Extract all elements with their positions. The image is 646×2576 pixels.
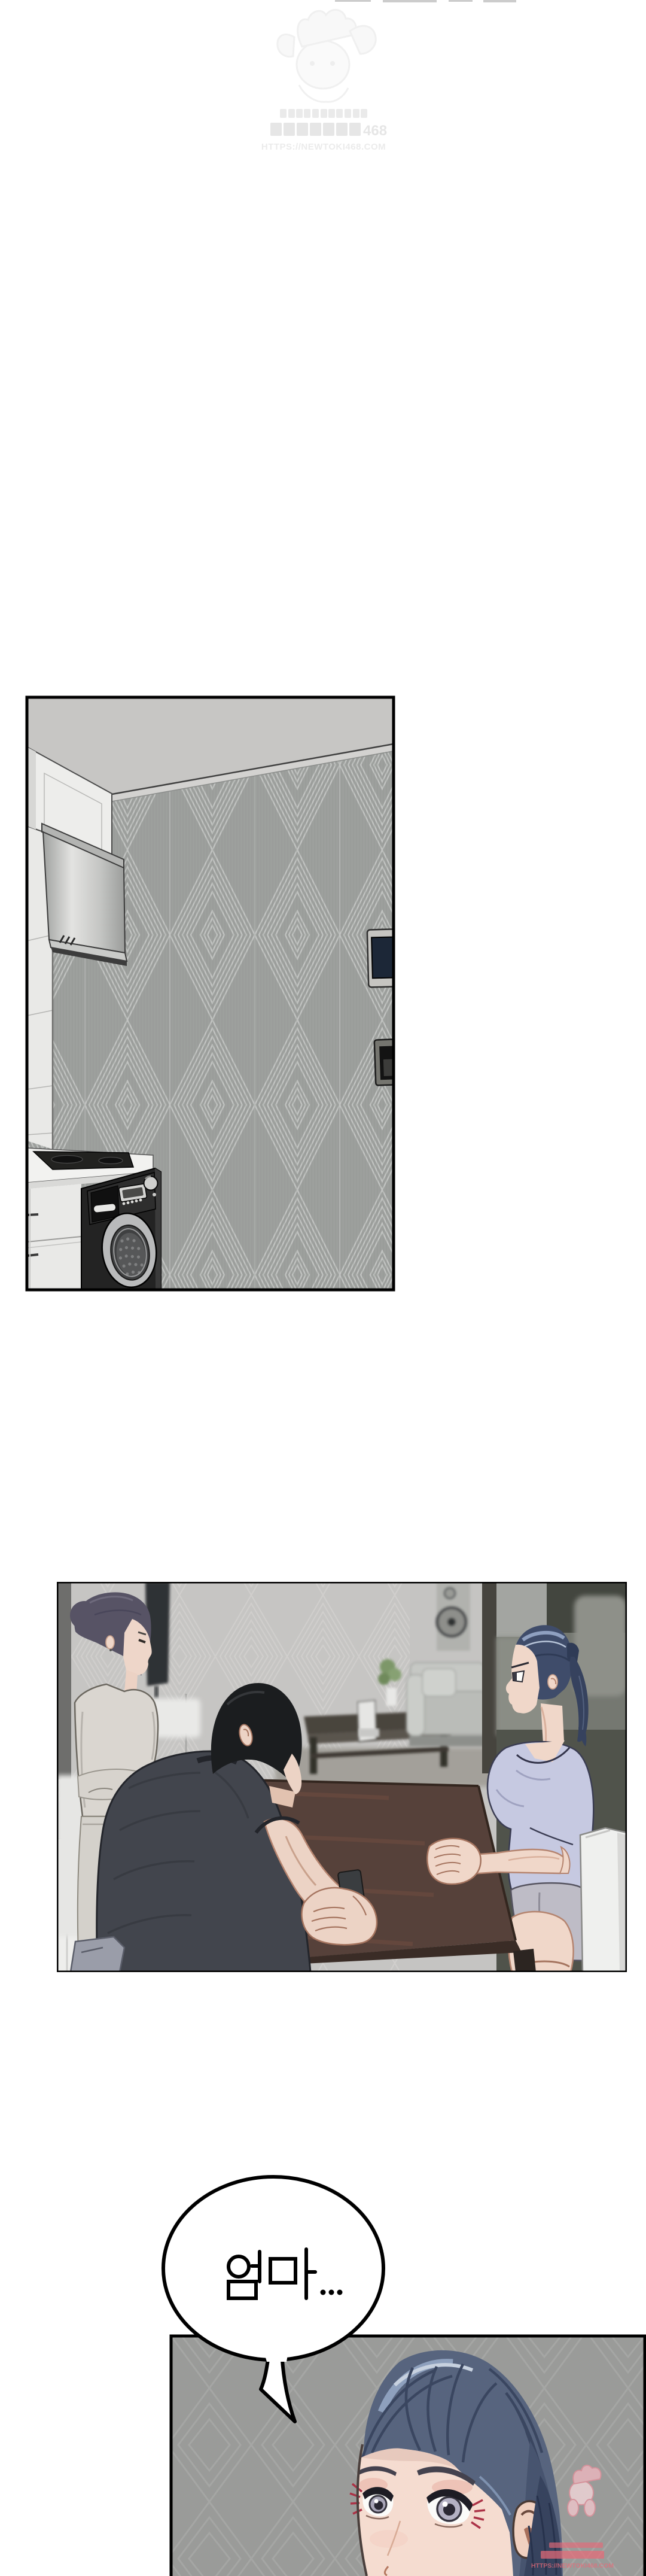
svg-text:HTTPS://NEWTOKI468.COM: HTTPS://NEWTOKI468.COM <box>261 142 386 152</box>
svg-text:HTTPS://NEWTOKI468.COM: HTTPS://NEWTOKI468.COM <box>531 2562 614 2569</box>
svg-text:468: 468 <box>363 123 387 139</box>
